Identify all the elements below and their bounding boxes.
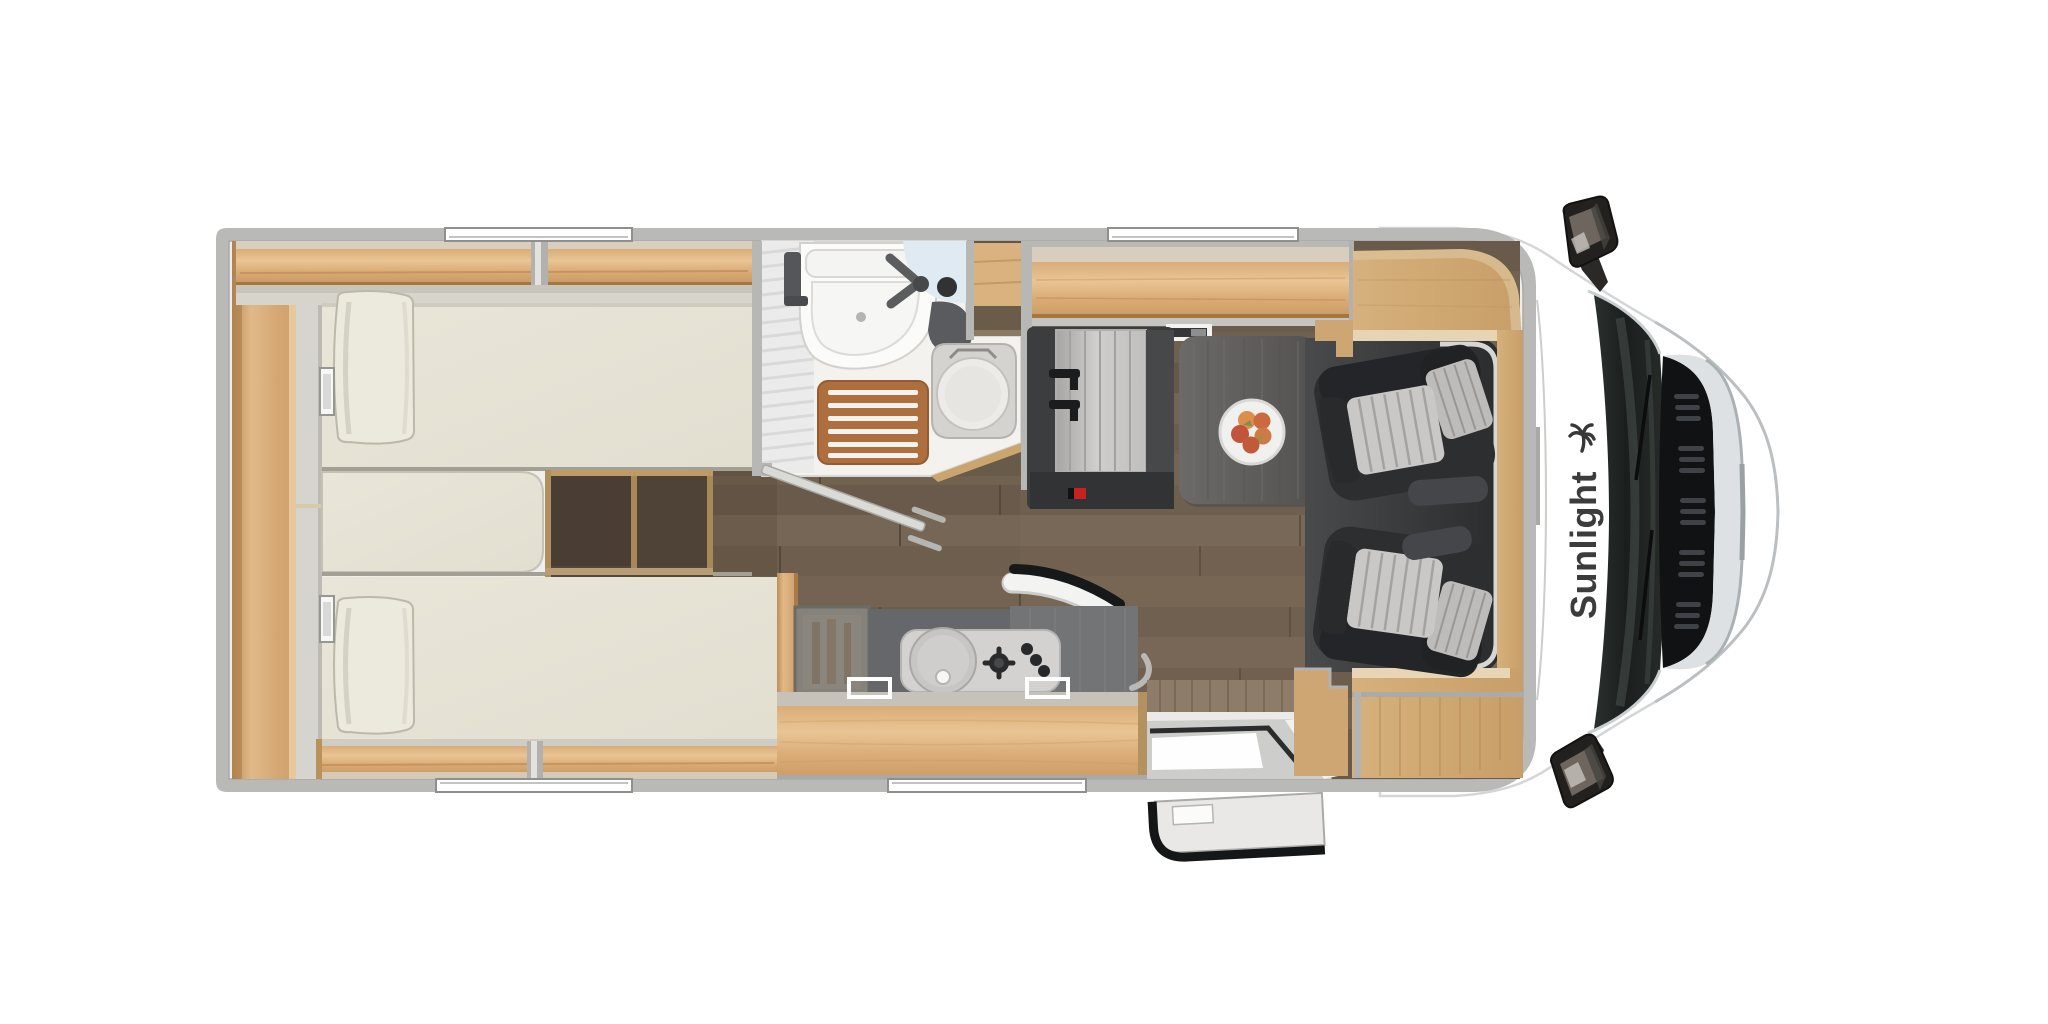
svg-text:Sunlight: Sunlight (1563, 471, 1604, 619)
